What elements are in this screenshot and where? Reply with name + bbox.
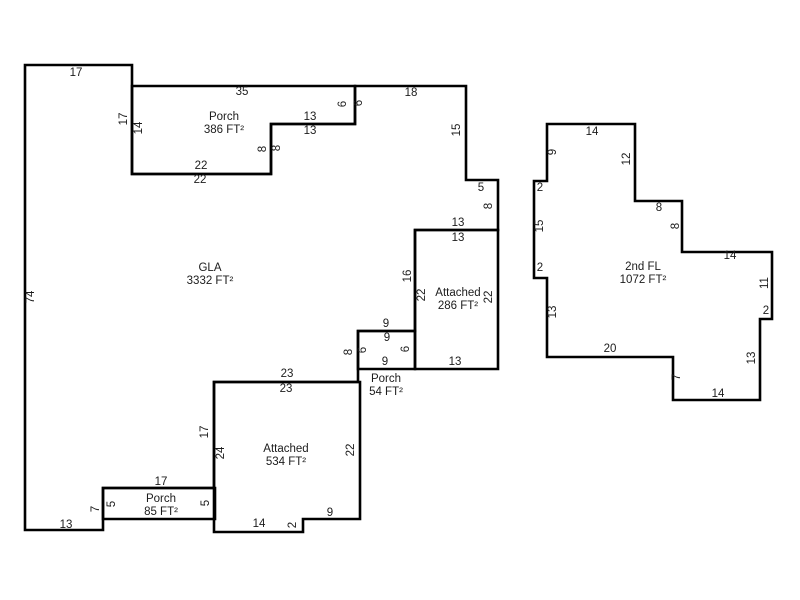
dimension-label: 17 (155, 476, 168, 488)
attached-534-area-label: 534 FT² (266, 456, 306, 468)
dimension-label: 9 (384, 332, 390, 344)
dimension-label: 6 (357, 347, 369, 353)
dimension-label: 22 (194, 174, 207, 186)
dimension-label: 6 (400, 346, 412, 352)
dimension-label: 8 (656, 202, 662, 214)
dimension-label: 6 (337, 101, 349, 107)
dimension-label: 74 (25, 290, 37, 303)
dimension-label: 9 (382, 356, 388, 368)
dimension-label: 23 (281, 368, 294, 380)
floor-plan-svg: GLA3332 FT²Porch386 FT²Attached286 FT²Po… (0, 0, 800, 600)
porch-386-area-label: Porch (209, 111, 239, 123)
dimension-label: 11 (759, 277, 771, 289)
dimension-label: 14 (586, 126, 599, 138)
second-floor-area-label: 1072 FT² (620, 274, 667, 286)
gla-area-label: GLA (198, 262, 221, 274)
dimension-label: 14 (253, 518, 266, 530)
dimension-label: 16 (402, 270, 414, 283)
porch-386-area-label: 386 FT² (204, 124, 244, 136)
dimension-label: 8 (670, 223, 682, 229)
dimension-label: 17 (199, 426, 211, 439)
dimension-label: 2 (763, 305, 769, 317)
porch-85-area-label: 85 FT² (144, 506, 178, 518)
gla-area-label: 3332 FT² (187, 275, 234, 287)
dimension-label: 13 (452, 232, 465, 244)
dimension-label: 2 (287, 522, 299, 528)
dimension-label: 22 (483, 291, 495, 304)
dimension-label: 13 (304, 125, 317, 137)
dimension-label: 5 (478, 182, 484, 194)
dimension-label: 20 (604, 343, 617, 355)
dimension-label: 14 (724, 250, 737, 262)
dimension-label: 2 (537, 262, 543, 274)
porch-54-area-label: 54 FT² (369, 386, 403, 398)
dimension-label: 5 (200, 500, 212, 506)
dimension-label: 8 (257, 146, 269, 152)
dimension-label: 23 (280, 383, 293, 395)
dimension-label: 8 (271, 145, 283, 151)
dimension-label: 13 (547, 306, 559, 319)
dimension-label: 13 (449, 356, 462, 368)
second-floor-area-label: 2nd FL (625, 261, 661, 273)
dimension-label: 9 (547, 149, 559, 155)
attached-286-area-label: Attached (435, 287, 480, 299)
attached-286-area-label: 286 FT² (438, 300, 478, 312)
dimension-label: 18 (405, 87, 418, 99)
dimension-label: 22 (345, 444, 357, 457)
dimension-label: 13 (746, 352, 758, 365)
dimension-label: 15 (534, 220, 546, 233)
porch-54-area-label: Porch (371, 373, 401, 385)
dimension-label: 9 (383, 318, 389, 330)
dimension-label: 9 (327, 507, 333, 519)
dimension-label: 8 (483, 203, 495, 209)
dimension-label: 2 (537, 182, 543, 194)
floor-plan-sketch: GLA3332 FT²Porch386 FT²Attached286 FT²Po… (0, 0, 800, 600)
dimension-label: 13 (60, 519, 73, 531)
dimension-label: 13 (304, 111, 317, 123)
dimension-label: 14 (712, 388, 725, 400)
dimension-label: 15 (451, 124, 463, 137)
dimension-label: 13 (452, 217, 465, 229)
dimension-label: 7 (671, 374, 683, 380)
dimension-label: 12 (621, 153, 633, 166)
dimension-label: 5 (106, 501, 118, 507)
dimension-label: 8 (343, 349, 355, 355)
dimension-label: 7 (90, 506, 102, 512)
dimension-label: 22 (195, 160, 208, 172)
dimension-label: 17 (70, 67, 83, 79)
porch-85-area-label: Porch (146, 493, 176, 505)
dimension-label: 14 (133, 121, 145, 134)
dimension-label: 6 (353, 100, 365, 106)
dimension-label: 22 (416, 289, 428, 302)
dimension-label: 17 (118, 113, 130, 126)
dimension-label: 35 (236, 86, 249, 98)
dimension-label: 24 (215, 446, 227, 459)
attached-534-area-label: Attached (263, 443, 308, 455)
